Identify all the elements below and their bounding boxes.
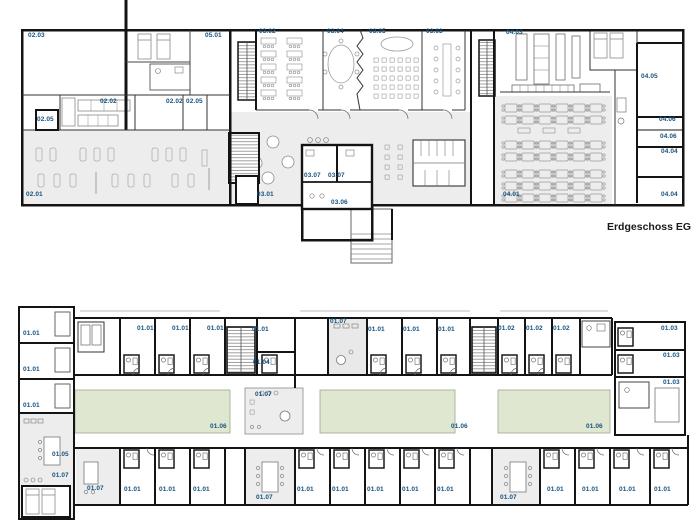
storage-shelves	[62, 98, 130, 126]
gym-floor	[23, 130, 230, 204]
floor-plan-drawing	[0, 0, 700, 525]
courtyard	[320, 390, 455, 433]
wc-block	[413, 140, 465, 186]
floor-plan-document: 02.0305.0102.0202.0202.0502.0502.0103.02…	[0, 0, 700, 525]
interview-room-block	[302, 145, 372, 209]
seminar-desks	[261, 38, 302, 100]
floor-caption: Erdgeschoss EG	[531, 221, 691, 233]
conference-table	[323, 39, 359, 89]
courtyard	[498, 390, 610, 433]
upper-floor-plan	[19, 307, 688, 519]
meeting-room-seats	[434, 44, 460, 96]
lecture-room-seats	[374, 37, 418, 98]
courtyard	[75, 390, 230, 433]
